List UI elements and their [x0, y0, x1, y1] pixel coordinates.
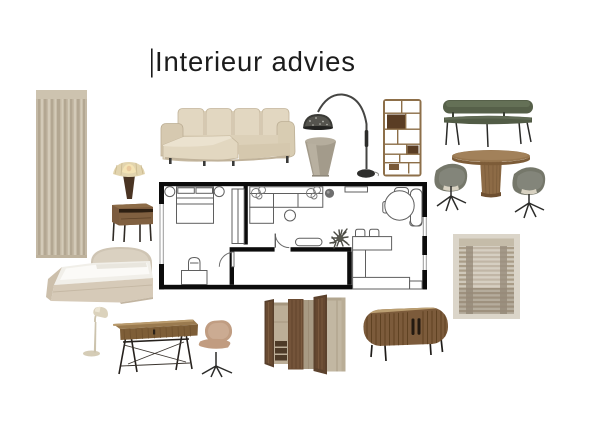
svg-text:Interieur advies: Interieur advies: [155, 46, 356, 77]
